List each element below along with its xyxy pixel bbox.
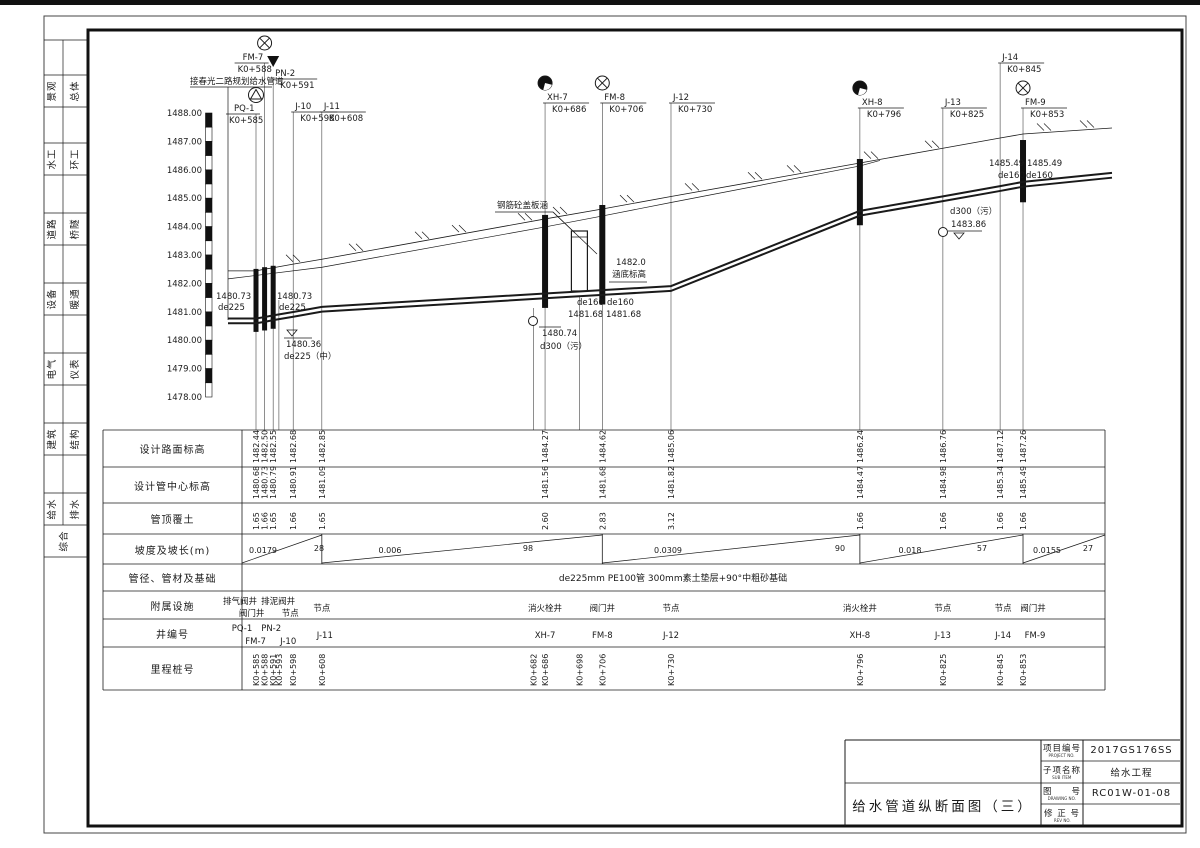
well-id-label: J-10 (279, 637, 296, 647)
station-label: K0+796 (856, 654, 865, 686)
slope-value: 0.0155 (1033, 546, 1061, 555)
elev-scale-segment (206, 127, 213, 141)
elev-label: 1488.00 (167, 109, 202, 119)
ground-hatch (1087, 121, 1094, 128)
discipline-label: 水工 (46, 139, 60, 179)
elev-label: 1481.00 (167, 308, 202, 318)
annotation: 1480.73 (216, 292, 251, 302)
elev-label: 1482.00 (167, 279, 202, 289)
ground-hatch (864, 152, 871, 159)
facility-label: 阀门井 (239, 608, 265, 619)
well-station: K0+853 (1030, 110, 1064, 120)
well-id-label: FM-7 (245, 637, 266, 647)
title-block-label: 子项名称 SUB ITEM (1041, 761, 1083, 783)
facility-label: 节点 (313, 604, 331, 614)
pipe-spec: de225mm PE100管 300mm素土垫层+90°中粗砂基础 (559, 572, 787, 584)
station-label: K0+686 (541, 654, 550, 686)
elev-scale-segment (206, 326, 213, 340)
elev-scale-segment (206, 212, 213, 226)
facility-label: 消火栓井 (528, 603, 562, 614)
cover-depth-value: 1.66 (996, 512, 1005, 530)
well-name-J-11: J-11 (323, 102, 340, 112)
pipe-elev-value: 1485.49 (1019, 466, 1028, 499)
pipe-elev-value: 1481.68 (598, 466, 607, 499)
discipline-label: 桥隧 (69, 209, 83, 249)
natural-ground-line (228, 160, 880, 278)
annotation: de225 (218, 303, 245, 313)
ground-hatch (293, 255, 300, 262)
label-en: SUB ITEM (1052, 776, 1071, 781)
drawing-no-value: RC01W-01-08 (1083, 783, 1180, 804)
ground-hatch (415, 232, 422, 239)
well-id-label: FM-8 (592, 631, 613, 641)
elev-scale-segment (206, 184, 213, 198)
slope-length: 98 (523, 544, 533, 553)
discipline-label: 道路 (46, 209, 60, 249)
ground-hatch (925, 141, 932, 148)
elev-label: 1483.00 (167, 251, 202, 261)
road-elev-value: 1482.55 (269, 430, 278, 463)
well-id-label: J-14 (994, 631, 1011, 641)
elev-scale-segment (206, 170, 213, 184)
station-label: K0+853 (1019, 654, 1028, 686)
title-block-label: 图 号 DRAWING NO. (1041, 783, 1083, 804)
annotation: 1480.36 (286, 340, 321, 350)
slope-length: 90 (835, 544, 845, 553)
pipe-elev-value: 1481.82 (667, 466, 676, 499)
station-label: K0+845 (996, 654, 1005, 686)
annotation: de160 (998, 171, 1025, 181)
annotation: de225（中） (284, 351, 336, 362)
annotation: 涵底标高 (612, 269, 646, 280)
ground-hatch (452, 225, 459, 232)
drawing-frame (88, 30, 1182, 826)
road-elev-value: 1482.85 (318, 430, 327, 463)
annotation: 1481.68 (568, 310, 603, 320)
discipline-label-bottom: 综合 (58, 521, 72, 561)
annotation: de225 (279, 303, 306, 313)
road-elev-value: 1486.76 (939, 430, 948, 463)
ground-hatch (459, 225, 466, 232)
label-cn: 图 号 (1043, 785, 1081, 797)
cover-depth-value: 2.83 (598, 512, 607, 530)
ground-hatch (349, 244, 356, 251)
facility-label: 排泥阀井 (261, 596, 295, 607)
slope-length: 27 (1083, 544, 1093, 553)
label-en: REV NO. (1054, 819, 1071, 824)
well-name-J-12: J-12 (672, 93, 689, 103)
label-en: PROJECT NO. (1049, 754, 1075, 759)
well-id-label: XH-8 (850, 631, 871, 641)
well-id-label: FM-9 (1025, 631, 1046, 641)
slope-diagonal (322, 535, 602, 563)
annotation: 1480.73 (277, 292, 312, 302)
well-id-label: XH-7 (535, 631, 556, 641)
ground-hatch (422, 232, 429, 239)
station-label: K0+598 (289, 654, 298, 686)
elev-label: 1486.00 (167, 166, 202, 176)
level-mark-icon (954, 233, 964, 239)
well-name-XH-7: XH-7 (547, 93, 568, 103)
annotation: 1485.49 (989, 159, 1024, 169)
elev-label: 1480.00 (167, 336, 202, 346)
row-label-pipe-spec: 管径、管材及基础 (104, 564, 241, 591)
annotation: 1482.0 (616, 258, 646, 268)
elev-scale-segment (206, 383, 213, 397)
facility-label: 阀门井 (590, 603, 616, 614)
elev-scale-segment (206, 156, 213, 170)
ground-hatch (1080, 121, 1087, 128)
road-elev-value: 1485.06 (667, 430, 676, 463)
label-en: DRAWING NO. (1048, 797, 1076, 802)
slope-diagonal (602, 535, 860, 563)
station-label: K0+593 (275, 654, 284, 686)
drawing-title: 给水管道纵断面图（三） (845, 783, 1041, 826)
cover-depth-value: 1.66 (856, 512, 865, 530)
road-elev-value: 1482.68 (289, 430, 298, 463)
elev-scale-segment (206, 113, 213, 127)
row-label-slope: 坡度及坡长(m) (104, 534, 241, 564)
elev-scale-segment (206, 354, 213, 368)
row-label-station: 里程桩号 (104, 647, 241, 690)
well-name-PQ-1: PQ-1 (234, 104, 255, 114)
ground-hatch (356, 244, 363, 251)
station-label: K0+706 (598, 654, 607, 686)
station-label: K0+698 (575, 654, 584, 686)
level-mark-icon (287, 330, 297, 336)
pipe-elev-value: 1484.47 (856, 466, 865, 499)
elev-scale-segment (206, 141, 213, 155)
pipe-elev-value: 1485.34 (996, 466, 1005, 499)
road-elev-value: 1484.27 (541, 430, 550, 463)
title-block-label: 修 正 号 REV NO. (1041, 804, 1083, 826)
well-id-label: J-13 (934, 631, 951, 641)
elev-scale-segment (206, 269, 213, 283)
cover-depth-value: 3.12 (667, 512, 676, 530)
slope-value: 0.0309 (654, 546, 682, 555)
elev-scale-segment (206, 369, 213, 383)
annotation: d300（污） (540, 341, 587, 352)
ground-hatch (685, 183, 692, 190)
well-station: K0+588 (238, 65, 272, 75)
well-name-J-13: J-13 (944, 98, 961, 108)
elev-label: 1484.00 (167, 223, 202, 233)
well-name-FM-8: FM-8 (604, 93, 625, 103)
pipe-elev-value: 1480.79 (269, 466, 278, 499)
well-id-label: J-11 (316, 631, 333, 641)
slope-length: 28 (314, 544, 324, 553)
discipline-label: 建筑 (46, 419, 60, 459)
slope-value: 0.006 (379, 546, 402, 555)
well-station: K0+845 (1007, 65, 1041, 75)
pipe-bottom-line (228, 178, 1112, 324)
well-id-label: J-12 (662, 631, 679, 641)
slope-value: 0.018 (899, 546, 922, 555)
pipe-elev-value: 1484.98 (939, 466, 948, 499)
elev-scale-segment (206, 227, 213, 241)
elev-scale-segment (206, 312, 213, 326)
ground-hatch (627, 195, 634, 202)
facility-label: 节点 (282, 609, 300, 619)
elev-label: 1479.00 (167, 365, 202, 375)
discipline-label: 暖通 (69, 279, 83, 319)
profile-drawing-canvas: 1488.001487.001486.001485.001484.001483.… (0, 0, 1200, 848)
well-station: K0+706 (609, 105, 643, 115)
ground-hatch (748, 172, 755, 179)
annotation: de160 (1026, 171, 1053, 181)
title-block-label: 项目编号 PROJECT NO. (1041, 740, 1083, 761)
drawing-sheet: 1488.001487.001486.001485.001484.001483.… (0, 0, 1200, 848)
ground-hatch (932, 141, 939, 148)
well-station: K0+591 (280, 81, 314, 91)
row-label-road-elev: 设计路面标高 (104, 430, 241, 467)
well-name-XH-8: XH-8 (862, 98, 883, 108)
station-label: K0+730 (667, 654, 676, 686)
ground-hatch (525, 213, 532, 220)
elev-label: 1478.00 (167, 393, 202, 403)
sub-item-value: 给水工程 (1083, 761, 1180, 783)
ground-hatch (787, 165, 794, 172)
annotation: 1480.74 (542, 329, 577, 339)
ground-hatch (871, 152, 878, 159)
discipline-label: 设备 (46, 279, 60, 319)
elev-label: 1485.00 (167, 194, 202, 204)
crossing-pipe-icon (939, 228, 948, 237)
culvert-box (571, 231, 587, 291)
facility-label: 消火栓井 (843, 603, 877, 614)
discipline-label: 总体 (69, 71, 83, 111)
label-cn: 项目编号 (1043, 742, 1081, 754)
discipline-label: 仪表 (69, 349, 83, 389)
slope-value: 0.0179 (249, 546, 277, 555)
crossing-pipe-icon (529, 317, 538, 326)
cover-depth-value: 1.65 (318, 512, 327, 530)
annotation: de160 (577, 298, 604, 308)
ground-hatch (794, 165, 801, 172)
ground-hatch (1044, 123, 1051, 130)
elev-scale-segment (206, 241, 213, 255)
station-label: K0+608 (318, 654, 327, 686)
pipe-elev-value: 1481.09 (318, 466, 327, 499)
ground-hatch (1037, 123, 1044, 130)
well-id-label: PN-2 (261, 624, 281, 634)
row-label-pipe-elev: 设计管中心标高 (104, 467, 241, 503)
station-label: K0+825 (939, 654, 948, 686)
ground-line (228, 128, 1112, 271)
well-station: K0+796 (867, 110, 901, 120)
facility-label: 节点 (662, 604, 680, 614)
well-station: K0+608 (329, 114, 363, 124)
discipline-label: 景观 (46, 71, 60, 111)
well-station: K0+825 (950, 110, 984, 120)
ground-hatch (620, 195, 627, 202)
outer-border (44, 16, 1186, 833)
label-cn: 子项名称 (1043, 764, 1081, 776)
label-cn: 修 正 号 (1044, 807, 1080, 819)
cover-depth-value: 1.66 (1019, 512, 1028, 530)
ground-hatch (518, 213, 525, 220)
cover-depth-value: 1.65 (269, 512, 278, 530)
ground-hatch (692, 183, 699, 190)
project-no-value: 2017GS176SS (1083, 740, 1180, 761)
discipline-label: 环工 (69, 139, 83, 179)
discipline-label: 电气 (46, 349, 60, 389)
elev-scale-segment (206, 198, 213, 212)
annotation: de160 (607, 298, 634, 308)
well-name-J-10: J-10 (294, 102, 311, 112)
elev-scale-segment (206, 298, 213, 312)
well-name-FM-9: FM-9 (1025, 98, 1046, 108)
pipe-elev-value: 1481.56 (541, 466, 550, 499)
cover-depth-value: 2.60 (541, 512, 550, 530)
road-elev-value: 1487.26 (1019, 430, 1028, 463)
cover-depth-value: 1.66 (939, 512, 948, 530)
row-label-cover: 管顶覆土 (104, 503, 241, 534)
pipe-elev-value: 1480.91 (289, 466, 298, 499)
road-elev-value: 1487.12 (996, 430, 1005, 463)
cover-depth-value: 1.66 (289, 512, 298, 530)
row-label-facilities: 附属设施 (104, 591, 241, 619)
facility-label: 节点 (995, 604, 1013, 614)
facility-label: 阀门井 (1020, 603, 1046, 614)
station-label: K0+682 (530, 654, 539, 686)
well-name-FM-7: FM-7 (243, 53, 264, 63)
well-station: K0+686 (552, 105, 586, 115)
ground-hatch (755, 172, 762, 179)
annotation: d300（污） (950, 206, 997, 217)
well-station: K0+585 (229, 116, 263, 126)
annotation: 1481.68 (606, 310, 641, 320)
elev-scale-segment (206, 283, 213, 297)
elev-label: 1487.00 (167, 137, 202, 147)
elev-scale-segment (206, 340, 213, 354)
annotation: 1483.86 (951, 220, 986, 230)
discipline-label: 结构 (69, 419, 83, 459)
well-name-J-14: J-14 (1001, 53, 1018, 63)
rev-no-value (1083, 804, 1180, 826)
slope-length: 57 (977, 544, 987, 553)
annotation: 钢筋砼盖板涵 (497, 200, 548, 211)
row-label-well-id: 井编号 (104, 619, 241, 647)
annotation: 1485.49 (1027, 159, 1062, 169)
ground-hatch (286, 255, 293, 262)
road-elev-value: 1484.62 (598, 430, 607, 463)
annotation: 接春光二路规划给水管道 (190, 76, 284, 87)
road-elev-value: 1486.24 (856, 430, 865, 463)
elev-scale-segment (206, 255, 213, 269)
ground-hatch (560, 207, 567, 214)
well-station: K0+730 (678, 105, 712, 115)
facility-label: 节点 (934, 604, 952, 614)
slope-diagonal (860, 535, 1023, 563)
